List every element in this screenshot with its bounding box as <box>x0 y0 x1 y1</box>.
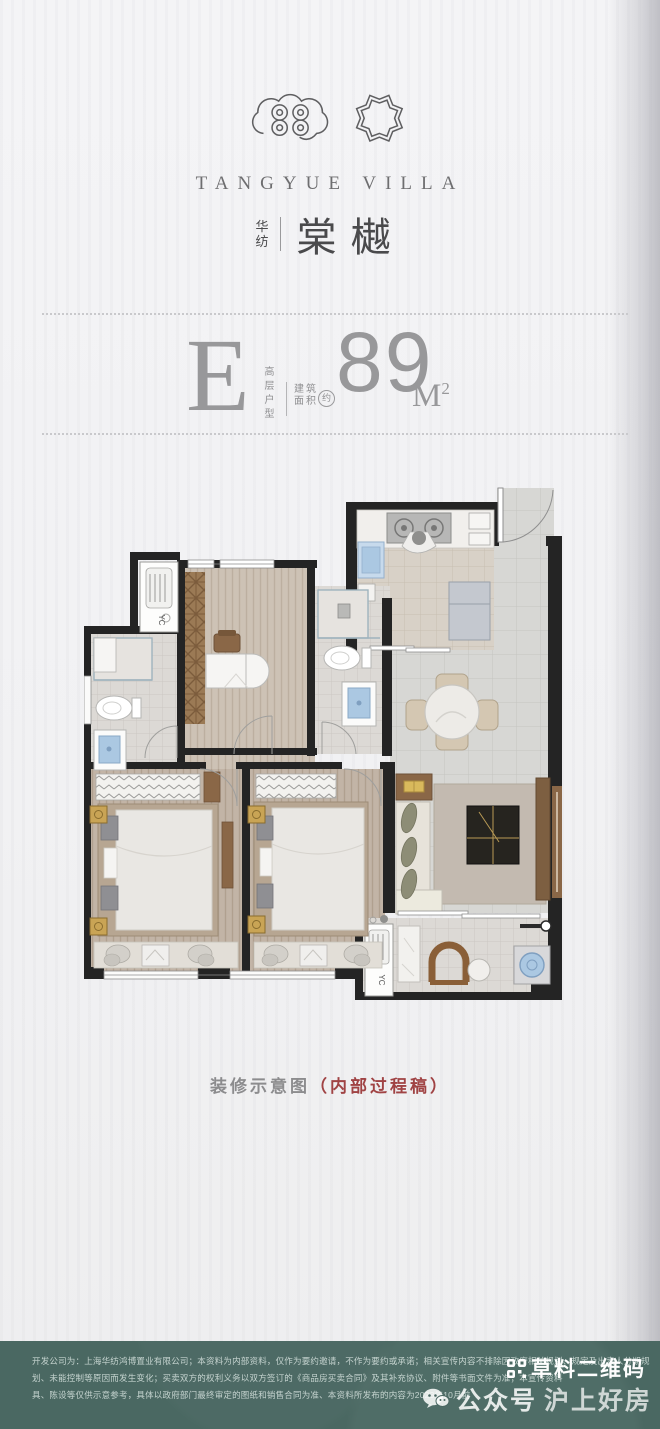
toilet-1-icon <box>96 696 141 720</box>
dresser-2 <box>256 774 336 798</box>
fridge-icon <box>449 582 490 640</box>
brand-main-name: 棠樾 <box>291 205 405 263</box>
wechat-account-name: 沪上好房 <box>544 1381 652 1417</box>
brand-divider <box>280 217 281 251</box>
brand-name-cn: 华 纺 棠樾 <box>0 205 660 263</box>
hallway-floor <box>183 719 315 769</box>
balcony-side-table <box>468 959 490 981</box>
brand-prefix-char-2: 纺 <box>255 234 269 249</box>
unit-letter: E <box>186 326 250 426</box>
study-top-window <box>188 560 274 568</box>
area-label-line2: 面积 <box>294 396 318 408</box>
balcony-shelf <box>398 926 420 982</box>
bed-2 <box>254 802 368 936</box>
area-label-line1: 建筑 <box>294 384 318 396</box>
area-unit-sup: 2 <box>441 379 450 398</box>
brand-logo-ornament-icon <box>235 84 425 160</box>
brand-prefix-char-1: 华 <box>255 219 269 234</box>
unit-info: E 高层户型 建筑 面积 约 89 M2 <box>0 330 660 440</box>
basin-2-icon <box>342 682 376 726</box>
qr-code-icon <box>507 1359 526 1378</box>
kitchen-sink-icon <box>358 542 384 578</box>
wechat-icon <box>423 1388 449 1410</box>
footer-disclaimer-bar: 开发公司为：上海华纺鸿博置业有限公司；本资料为内部资料，仅作为要约邀请，不作为要… <box>0 1341 660 1429</box>
nightstand-gold-2b <box>248 916 265 933</box>
ac-label-balcony: YC <box>377 974 386 985</box>
bed-1 <box>98 804 218 936</box>
nightstand-gold-1b <box>90 918 107 935</box>
unit-separator-line <box>286 382 287 416</box>
washing-machine-icon <box>514 946 550 984</box>
dotted-separator-bottom <box>42 433 628 435</box>
floor-plan: YC <box>84 486 564 1006</box>
brand-header: TANGYUE VILLA 华 纺 棠樾 <box>0 84 660 263</box>
study-wardrobe <box>185 572 205 724</box>
nightstand-gold-1a <box>90 806 107 823</box>
qr-watermark-label: 草料二维码 <box>531 1353 646 1383</box>
unit-type-label: 高层户型 <box>260 366 275 422</box>
ac-label-top: YC <box>157 614 166 625</box>
nightstand-gold-2a <box>248 806 265 823</box>
dresser-1 <box>96 774 200 800</box>
dotted-separator-top <box>42 313 628 315</box>
brand-prefix: 华 纺 <box>255 219 269 249</box>
study-desk <box>206 654 269 688</box>
coffee-table <box>467 806 519 864</box>
caption-red: （内部过程稿） <box>310 1077 450 1096</box>
bath1-side-window <box>84 676 91 724</box>
plan-caption: 装修示意图（内部过程稿） <box>0 1072 660 1097</box>
bench-1 <box>222 822 233 888</box>
living-room <box>396 774 550 918</box>
caption-gray: 装修示意图 <box>210 1077 310 1096</box>
approx-badge: 约 <box>318 390 335 407</box>
toilet-2-icon <box>324 646 371 670</box>
bay-window-2 <box>254 942 382 968</box>
brand-name-en: TANGYUE VILLA <box>0 173 660 195</box>
area-label: 建筑 面积 <box>294 384 318 408</box>
side-table <box>396 774 432 800</box>
bay-window-1 <box>94 942 238 968</box>
area-unit: M2 <box>412 378 450 415</box>
area-unit-m: M <box>412 378 441 414</box>
basin-1-icon <box>94 730 126 770</box>
ac-unit-top: YC <box>140 562 178 632</box>
qr-watermark: 草料二维码 <box>507 1353 646 1383</box>
wechat-watermark: 公众号 沪上好房 <box>423 1381 652 1417</box>
tv-console <box>536 778 550 900</box>
wechat-account-label: 公众号 <box>456 1381 537 1417</box>
